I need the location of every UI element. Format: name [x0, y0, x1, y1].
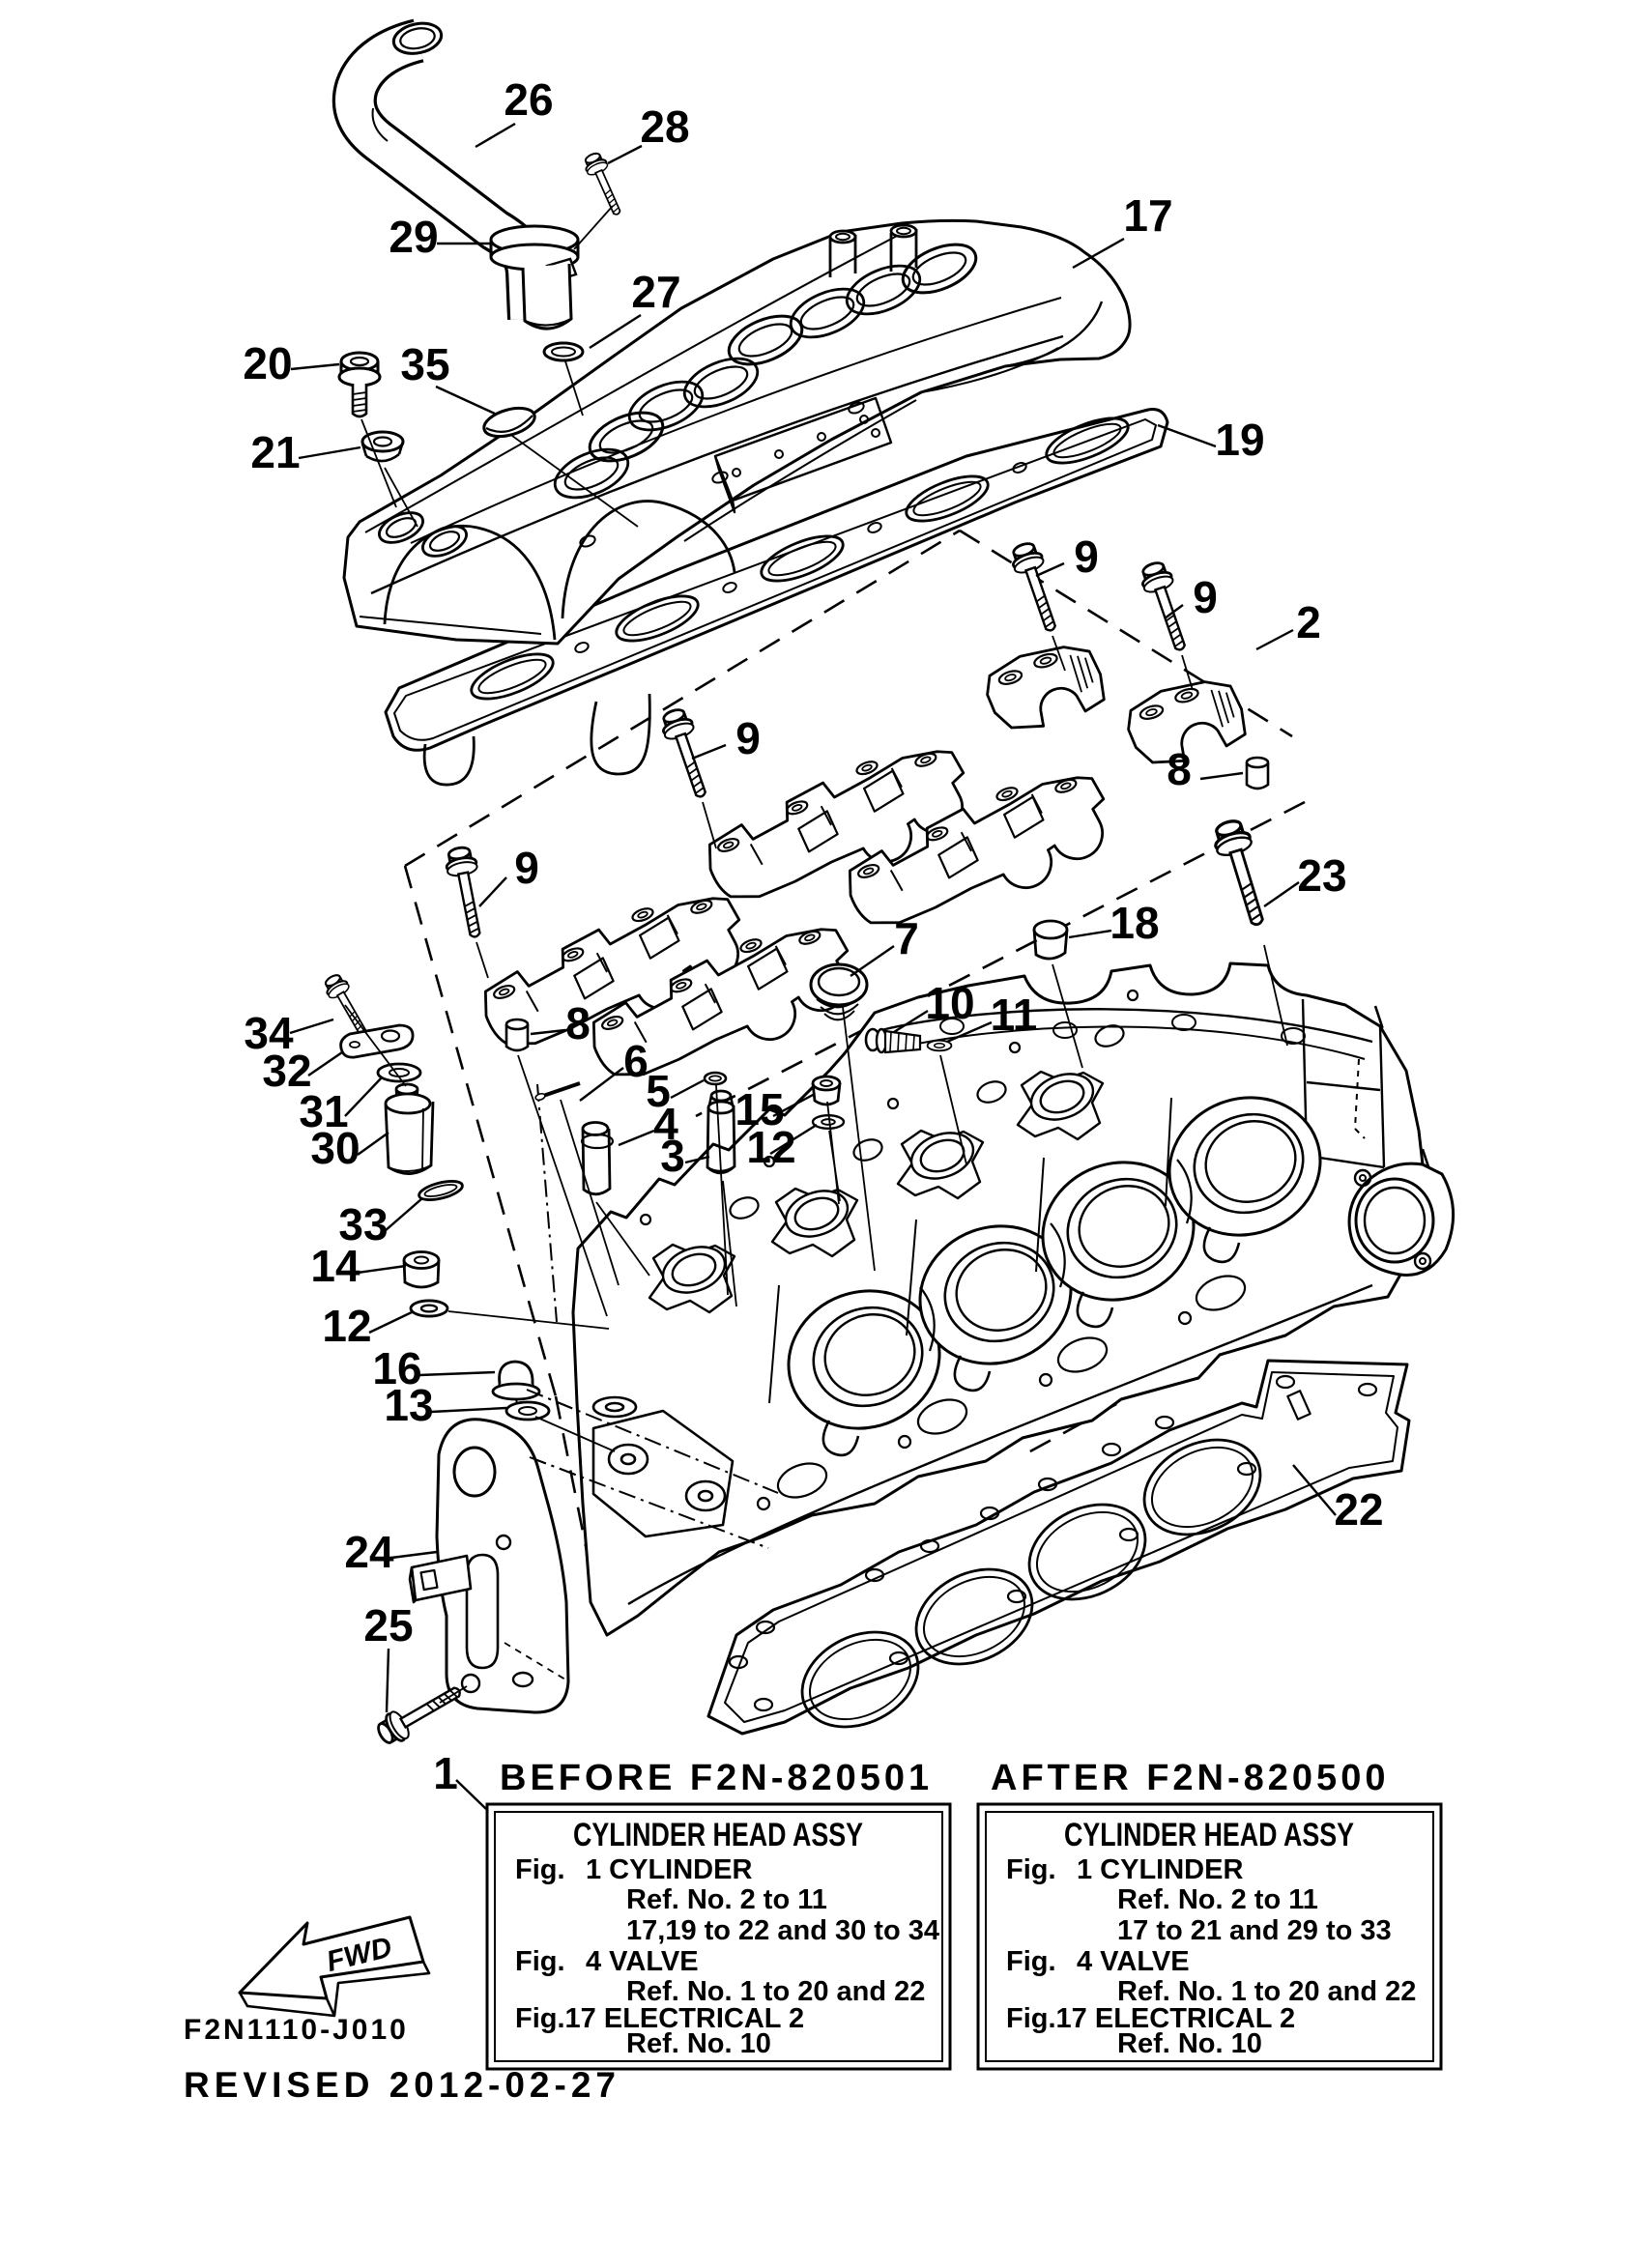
svg-text:23: 23: [1297, 850, 1346, 901]
svg-text:13: 13: [384, 1380, 433, 1430]
svg-text:17 to 21 and 29 to 33: 17 to 21 and 29 to 33: [1117, 1915, 1392, 1946]
svg-text:Ref. No. 10: Ref. No. 10: [626, 2028, 771, 2059]
svg-text:17: 17: [1123, 190, 1172, 241]
svg-text:30: 30: [310, 1123, 360, 1173]
svg-text:22: 22: [1334, 1484, 1383, 1535]
svg-text:3: 3: [660, 1131, 685, 1181]
svg-text:17,19 to 22 and 30 to 34: 17,19 to 22 and 30 to 34: [626, 1915, 939, 1946]
svg-text:12: 12: [322, 1301, 371, 1351]
svg-text:25: 25: [363, 1600, 413, 1651]
svg-text:14: 14: [310, 1241, 360, 1291]
svg-text:CYLINDER HEAD ASSY: CYLINDER HEAD ASSY: [573, 1817, 863, 1853]
svg-text:20: 20: [243, 338, 292, 388]
svg-text:35: 35: [400, 339, 449, 389]
svg-text:28: 28: [640, 101, 689, 152]
svg-text:AFTER F2N-820500: AFTER F2N-820500: [991, 1758, 1389, 1798]
svg-text:Ref. No. 2 to 11: Ref. No. 2 to 11: [1117, 1884, 1318, 1915]
svg-text:6: 6: [623, 1036, 649, 1086]
svg-text:Fig.: Fig.: [515, 1946, 565, 1977]
svg-text:9: 9: [1193, 572, 1218, 622]
svg-text:Fig.: Fig.: [1006, 1946, 1056, 1977]
svg-text:9: 9: [1074, 531, 1099, 582]
svg-text:8: 8: [1167, 744, 1192, 794]
svg-text:9: 9: [514, 843, 539, 893]
svg-text:8: 8: [565, 998, 591, 1048]
svg-text:Ref. No. 2 to 11: Ref. No. 2 to 11: [626, 1884, 827, 1915]
svg-text:21: 21: [250, 427, 300, 477]
svg-text:24: 24: [344, 1527, 394, 1577]
svg-text:Fig.: Fig.: [515, 1854, 565, 1885]
svg-text:REVISED 2012-02-27: REVISED 2012-02-27: [184, 2065, 620, 2105]
svg-text:F2N1110-J010: F2N1110-J010: [184, 2014, 409, 2046]
svg-text:26: 26: [504, 74, 553, 125]
svg-text:27: 27: [631, 267, 680, 317]
svg-text:29: 29: [389, 212, 438, 262]
svg-text:11: 11: [991, 990, 1038, 1040]
svg-text:12: 12: [746, 1122, 795, 1172]
svg-text:Ref. No. 10: Ref. No. 10: [1117, 2028, 1262, 2059]
svg-text:CYLINDER HEAD ASSY: CYLINDER HEAD ASSY: [1064, 1817, 1354, 1853]
svg-text:1 CYLINDER: 1 CYLINDER: [1077, 1854, 1243, 1885]
svg-text:Fig.: Fig.: [1006, 1854, 1056, 1885]
svg-text:7: 7: [894, 913, 919, 963]
svg-text:1 CYLINDER: 1 CYLINDER: [586, 1854, 752, 1885]
svg-text:2: 2: [1296, 597, 1321, 647]
svg-text:19: 19: [1215, 415, 1264, 465]
svg-text:10: 10: [925, 978, 974, 1028]
svg-text:18: 18: [1110, 898, 1159, 948]
svg-text:BEFORE F2N-820501: BEFORE F2N-820501: [500, 1758, 933, 1798]
svg-text:4 VALVE: 4 VALVE: [586, 1946, 699, 1977]
svg-text:4 VALVE: 4 VALVE: [1077, 1946, 1190, 1977]
svg-text:1: 1: [433, 1748, 458, 1798]
svg-text:9: 9: [735, 713, 761, 763]
